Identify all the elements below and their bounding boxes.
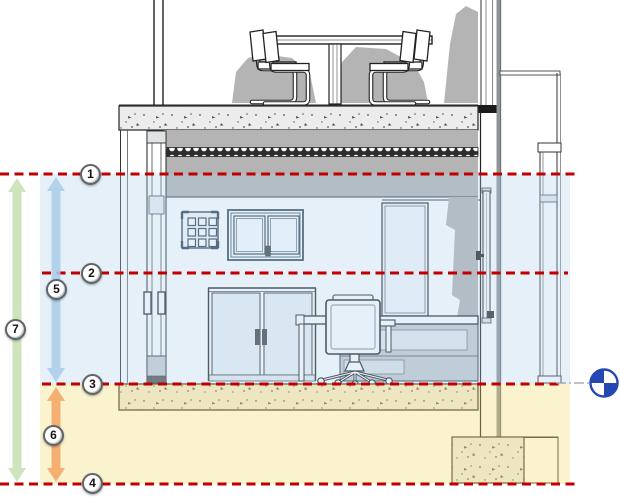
section-drawing — [0, 0, 620, 498]
upper-storey — [119, 0, 501, 113]
insulation-layer — [153, 148, 478, 157]
level-marker-4[interactable]: 4 — [82, 473, 103, 494]
upper-zone-overlay — [40, 174, 570, 384]
level-marker-3[interactable]: 3 — [82, 374, 103, 395]
dimension-marker-5[interactable]: 5 — [46, 279, 67, 300]
section-viewport: 1 2 3 4 5 6 7 — [0, 0, 620, 498]
upper-floor-slab — [119, 106, 478, 130]
base-point-icon[interactable] — [591, 370, 618, 397]
dimension-marker-7[interactable]: 7 — [5, 319, 26, 340]
level-marker-2[interactable]: 2 — [81, 263, 102, 284]
lower-zone-overlay — [40, 384, 570, 484]
dimension-marker-6[interactable]: 6 — [43, 425, 64, 446]
level-marker-1[interactable]: 1 — [80, 164, 101, 185]
